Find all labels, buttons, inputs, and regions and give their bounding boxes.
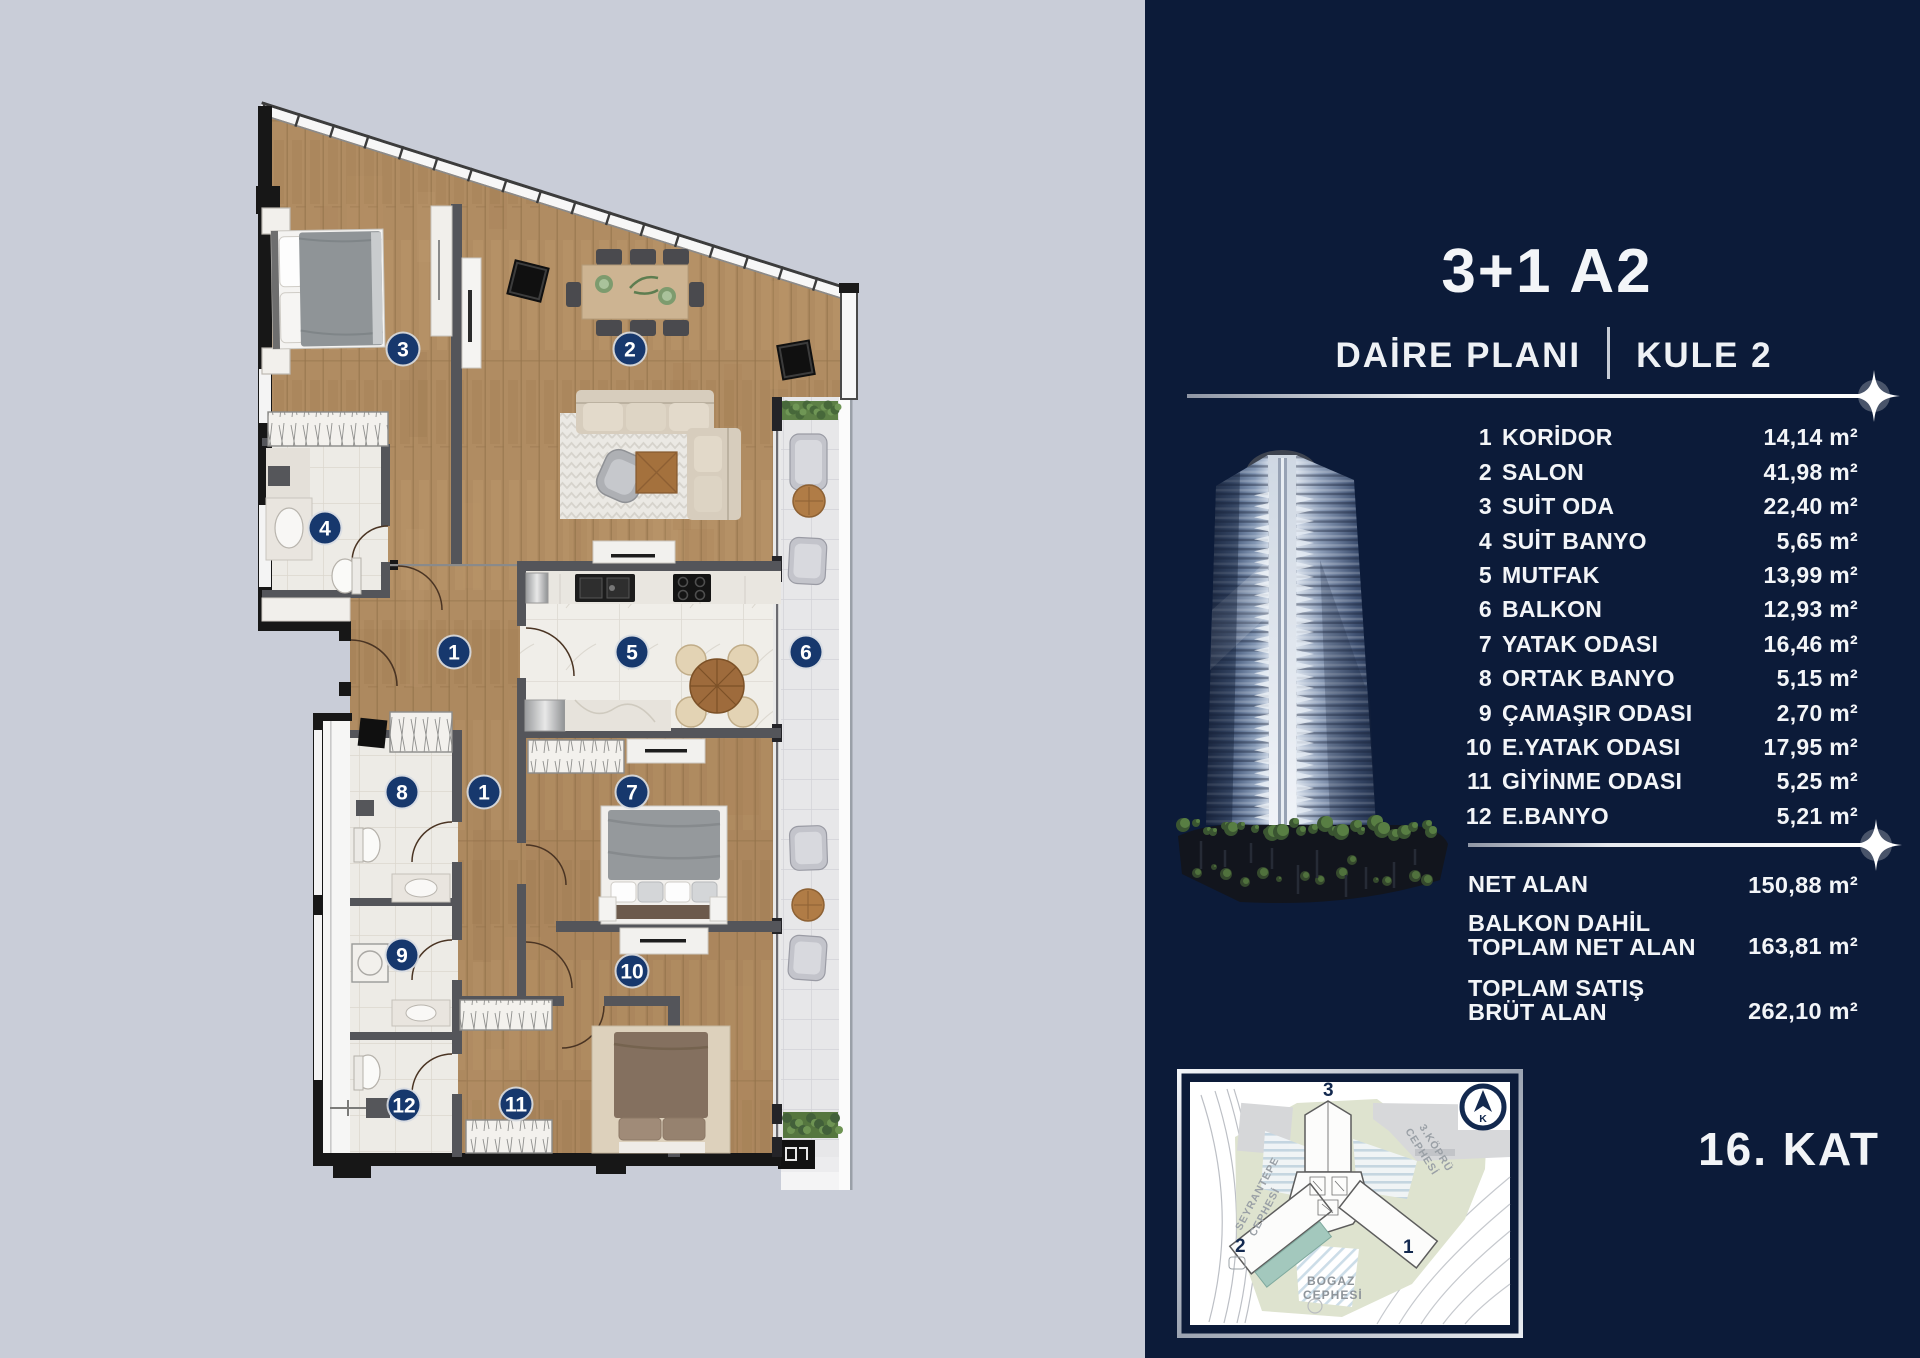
svg-text:8: 8 [396, 782, 408, 805]
svg-text:3: 3 [397, 339, 409, 362]
svg-text:7: 7 [626, 782, 638, 805]
svg-text:2: 2 [624, 339, 636, 362]
svg-text:10: 10 [620, 961, 643, 984]
svg-text:12: 12 [392, 1095, 415, 1118]
svg-text:11: 11 [505, 1094, 528, 1117]
svg-text:4: 4 [319, 518, 331, 541]
svg-text:1: 1 [478, 782, 490, 805]
svg-text:9: 9 [396, 945, 408, 968]
svg-text:6: 6 [800, 642, 812, 665]
svg-text:1: 1 [448, 642, 460, 665]
svg-text:5: 5 [626, 642, 638, 665]
